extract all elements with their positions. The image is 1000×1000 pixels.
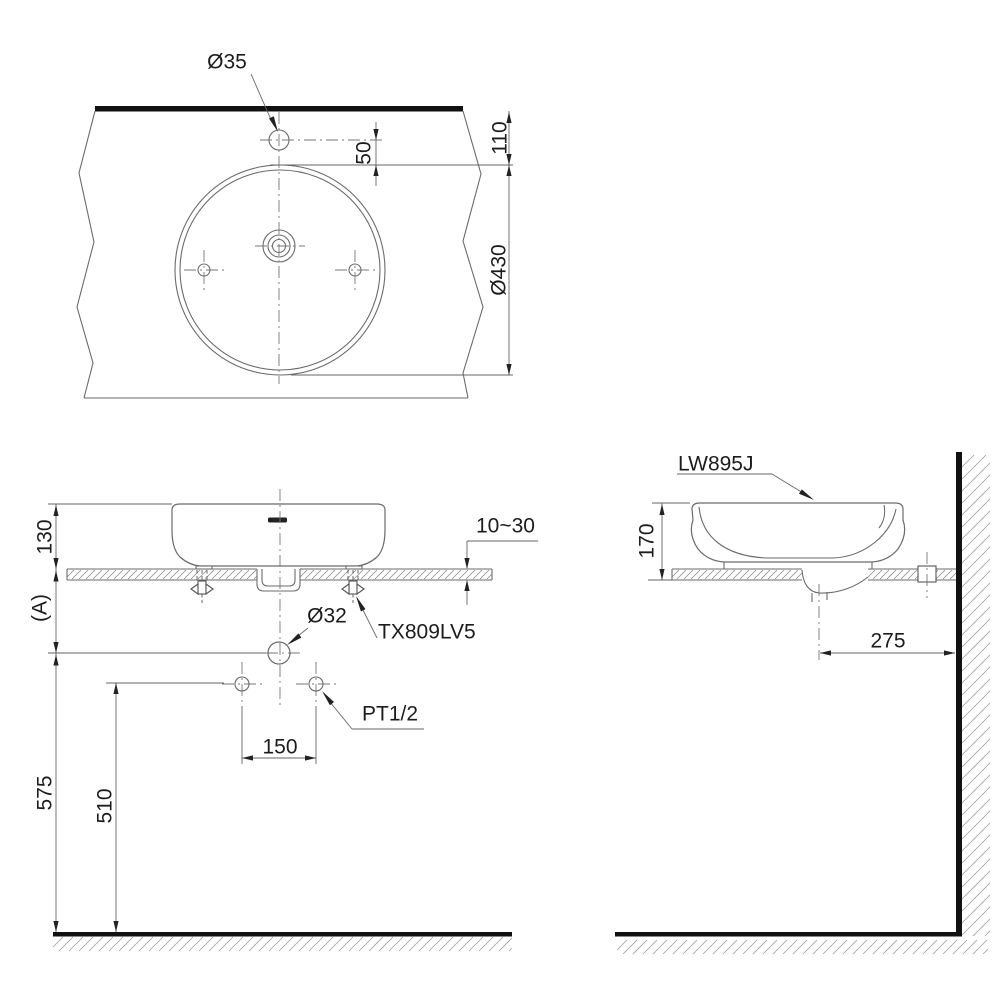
bolt-nut <box>198 581 206 594</box>
arrowhead <box>464 580 469 591</box>
front-floor-hatch <box>53 937 512 951</box>
leader-arrow <box>287 633 301 645</box>
side-wall-hatch <box>962 455 990 936</box>
arrowhead <box>53 505 58 516</box>
arrowhead <box>305 755 316 760</box>
side-basin-underside <box>802 570 868 593</box>
arrowhead <box>944 650 955 655</box>
arrowhead <box>53 921 58 932</box>
leader-arrow <box>269 116 278 132</box>
front-supply-leader <box>330 702 352 729</box>
arrowhead <box>464 558 469 569</box>
front-view: 130 (A) 575 510 150 10~30 Ø32 TX809LV5 <box>29 489 539 951</box>
bolt-wing <box>191 584 198 594</box>
side-dim-170: 170 <box>636 523 659 558</box>
side-label-product-model: LW895J <box>678 453 753 476</box>
front-trap-outer <box>257 569 300 591</box>
arrowhead <box>506 364 511 375</box>
arrowhead <box>53 571 58 582</box>
front-dim-150: 150 <box>262 736 297 759</box>
arrowhead <box>373 129 378 140</box>
plan-wall-edge <box>95 106 463 112</box>
side-basin-body <box>691 503 904 562</box>
side-floor-hatch <box>617 940 988 954</box>
arrowhead <box>53 558 58 569</box>
front-basin-foot-right <box>346 566 362 569</box>
side-wall-line <box>956 452 962 936</box>
side-counter-hatch-right <box>868 570 956 579</box>
side-floor-line <box>615 932 962 937</box>
leader-arrow <box>322 691 334 705</box>
plan-dim-50: 50 <box>353 141 376 164</box>
arrowhead <box>53 642 58 653</box>
plan-counter-break-left <box>77 111 95 398</box>
plan-view: 50 110 Ø430 Ø35 <box>77 51 513 399</box>
plan-dim-faucet-diameter: Ø35 <box>207 51 247 74</box>
front-basin-body <box>172 504 385 566</box>
plan-faucet-leader <box>251 74 272 122</box>
front-bolt-leader <box>362 608 377 638</box>
bolt-wing <box>342 584 349 594</box>
bolt-nut <box>349 581 357 594</box>
front-floor-line <box>53 932 512 937</box>
side-view: 170 275 LW895J <box>615 452 990 954</box>
side-model-leader <box>772 474 803 493</box>
plan-counter-break-right <box>463 111 483 398</box>
front-dim-130: 130 <box>34 519 57 554</box>
arrowhead <box>506 165 511 176</box>
arrowhead <box>242 755 253 760</box>
arrowhead <box>820 650 831 655</box>
front-basin-foot-left <box>196 566 212 569</box>
side-dim-275: 275 <box>870 630 905 653</box>
bolt-wing <box>357 584 364 594</box>
arrowhead <box>659 569 664 580</box>
arrowhead <box>659 504 664 515</box>
front-label-drain-fitting: TX809LV5 <box>378 621 476 644</box>
front-dim-510: 510 <box>94 788 117 823</box>
front-dim-575: 575 <box>34 775 57 810</box>
bolt-wing <box>206 584 213 594</box>
leader-arrow <box>356 596 366 612</box>
technical-drawing-page: 50 110 Ø430 Ø35 <box>0 0 1000 1000</box>
front-overflow-slot <box>268 518 287 523</box>
front-drain-leader <box>298 628 308 636</box>
front-dim-counter-thickness: 10~30 <box>476 515 535 538</box>
leader-arrow <box>799 489 814 500</box>
arrowhead <box>53 655 58 666</box>
side-counter-hatch-left <box>672 570 802 579</box>
front-counter-hatch-right <box>300 570 492 579</box>
front-dim-drain-diameter: Ø32 <box>307 605 347 628</box>
plan-dim-110: 110 <box>489 121 512 154</box>
front-counter-hatch-left <box>67 570 257 579</box>
plan-dim-bowl-diameter: Ø430 <box>488 244 511 295</box>
drawing-canvas: 50 110 Ø430 Ø35 <box>0 0 1000 1000</box>
arrowhead <box>113 921 118 932</box>
front-dim-A: (A) <box>29 594 52 622</box>
front-label-supply-thread: PT1/2 <box>362 703 418 726</box>
arrowhead <box>113 683 118 694</box>
arrowhead <box>373 165 378 176</box>
